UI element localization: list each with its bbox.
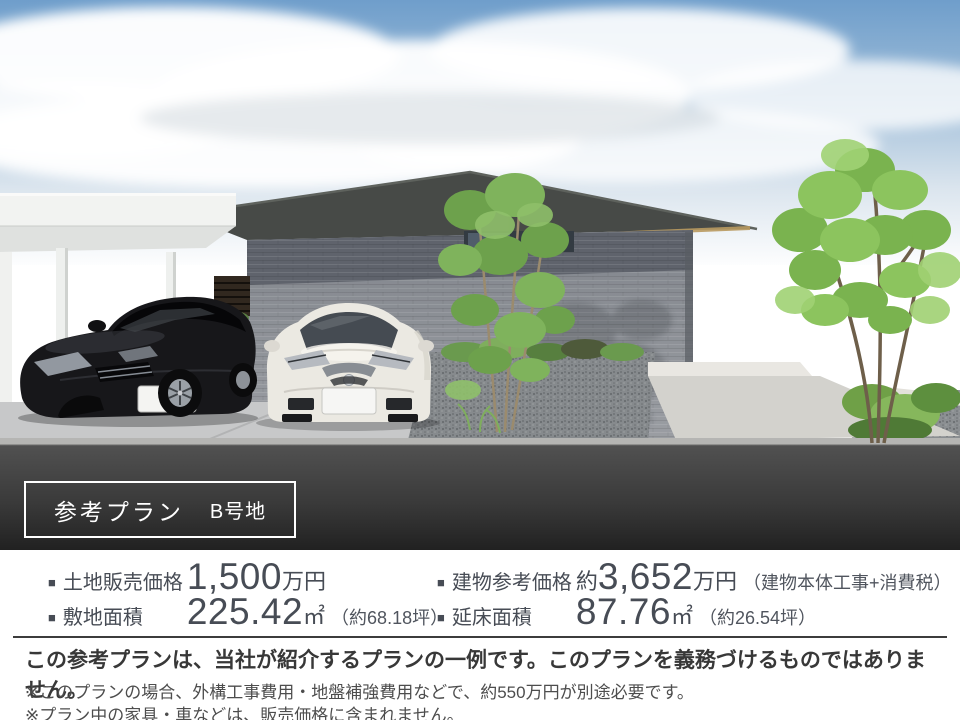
square-bullet-icon: ■ [437,575,445,590]
wheel [282,414,312,422]
carport-side-wall [0,252,12,422]
spec-site-area: ■ 敷地面積 225.42 ㎡ （約68.18坪） [48,591,448,633]
disclaimer-note-2: ※プラン中の家具・車などは、販売価格に含まれません。 [25,701,935,720]
wheel [229,363,257,397]
spec-unit: ㎡ [671,599,693,631]
spec-note: （約68.18坪） [331,604,448,630]
spec-value: 225.42 [187,591,303,633]
spec-floor-area: ■ 延床面積 87.76 ㎡ （約26.54坪） [437,591,816,633]
license-plate [322,388,376,414]
door-mirror [88,320,106,332]
plan-badge: 参考プラン B号地 [24,481,296,538]
plan-badge-lot: B号地 [210,495,266,524]
flyer-page: 参考プラン B号地 ■ 土地販売価格 1,500 万円 ■ 敷地面積 225.4… [0,0,960,720]
spec-unit: ㎡ [303,599,325,631]
spec-label: 延床面積 [452,601,576,630]
spec-label: 敷地面積 [63,601,187,630]
wheel [158,369,202,417]
clouds [0,7,960,188]
square-bullet-icon: ■ [48,575,56,590]
square-bullet-icon: ■ [437,610,445,625]
divider-line [13,636,947,638]
wheel [388,414,418,422]
door-mirror [264,340,280,352]
plan-badge-title: 参考プラン [54,493,184,527]
spec-value: 87.76 [576,591,671,633]
disclaimer-note-1: ※このプランの場合、外構工事費用・地盤補強費用などで、約550万円が別途必要です… [25,678,935,703]
square-bullet-icon: ■ [48,610,56,625]
door-mirror [418,340,434,352]
render-scene [0,0,960,550]
spec-note: （約26.54坪） [699,604,816,630]
exterior-render-photo [0,0,960,550]
curb [0,438,960,445]
